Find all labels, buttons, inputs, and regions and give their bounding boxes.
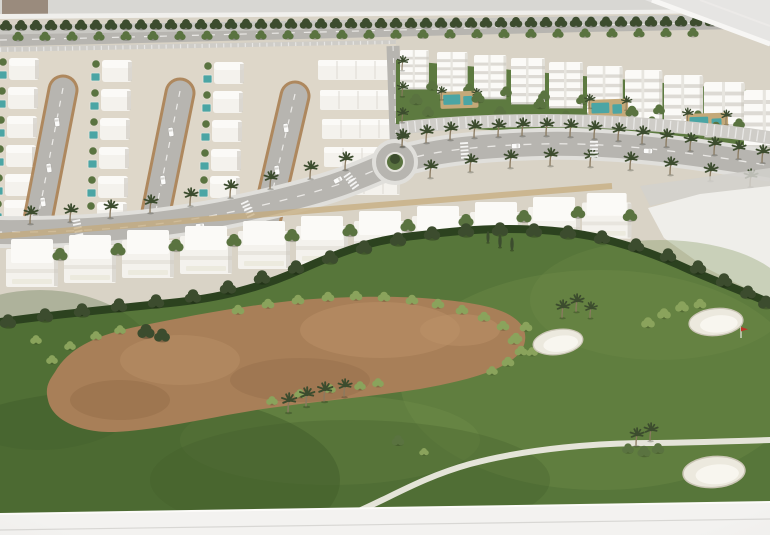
- model-car: [160, 175, 166, 185]
- background-pillar: [2, 0, 48, 14]
- villa-large: [180, 226, 232, 274]
- model-car: [54, 117, 60, 127]
- model-car: [511, 143, 520, 148]
- villa-large: [238, 221, 290, 269]
- townhouse-row: [318, 60, 392, 80]
- model-car: [40, 197, 46, 207]
- model-car: [643, 148, 652, 153]
- model-car: [46, 163, 52, 173]
- model-car: [168, 127, 174, 137]
- villa-large: [6, 239, 58, 287]
- villa-large: [64, 235, 116, 283]
- model-car: [283, 123, 289, 133]
- roundabout: [374, 141, 416, 183]
- photo-of-architectural-model: [0, 0, 770, 535]
- villa-large: [122, 230, 174, 278]
- townhouse-row: [320, 90, 394, 110]
- townhouse-row: [322, 119, 396, 139]
